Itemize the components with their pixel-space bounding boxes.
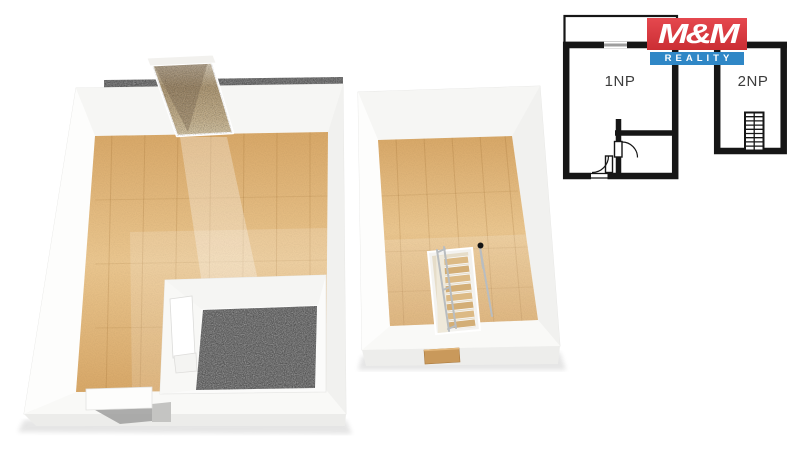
room-3d-2np — [358, 86, 566, 370]
logo-mm-text: M&M — [657, 18, 736, 50]
room2-wall-top-face — [358, 86, 540, 140]
plan-label-2np: 2NP — [738, 73, 769, 90]
room-3d-1np — [18, 55, 352, 434]
mm-reality-logo: M&M REALITY — [647, 18, 747, 65]
floorplan-render-page: 1NP 2NP M&M REALITY — [0, 0, 800, 450]
bathroom-door-panel — [170, 296, 195, 358]
plan-label-1np: 1NP — [605, 73, 636, 90]
room1-wall-front-face — [24, 414, 346, 426]
entry-doorway-opening — [152, 402, 171, 422]
logo-reality-bar: REALITY — [650, 52, 744, 65]
lower-stair-top-piece — [424, 348, 460, 364]
bathroom — [160, 275, 330, 395]
floorplan-scene: 1NP 2NP — [0, 0, 800, 450]
logo-mm-box: M&M — [647, 18, 747, 50]
railing-knob — [478, 243, 484, 249]
logo-reality-text: REALITY — [661, 53, 734, 64]
bathroom-door-panel-lower — [174, 353, 197, 373]
stairs-symbol — [745, 113, 764, 151]
room1-wall-right-face — [326, 84, 346, 414]
entry-door-panel — [86, 387, 152, 410]
